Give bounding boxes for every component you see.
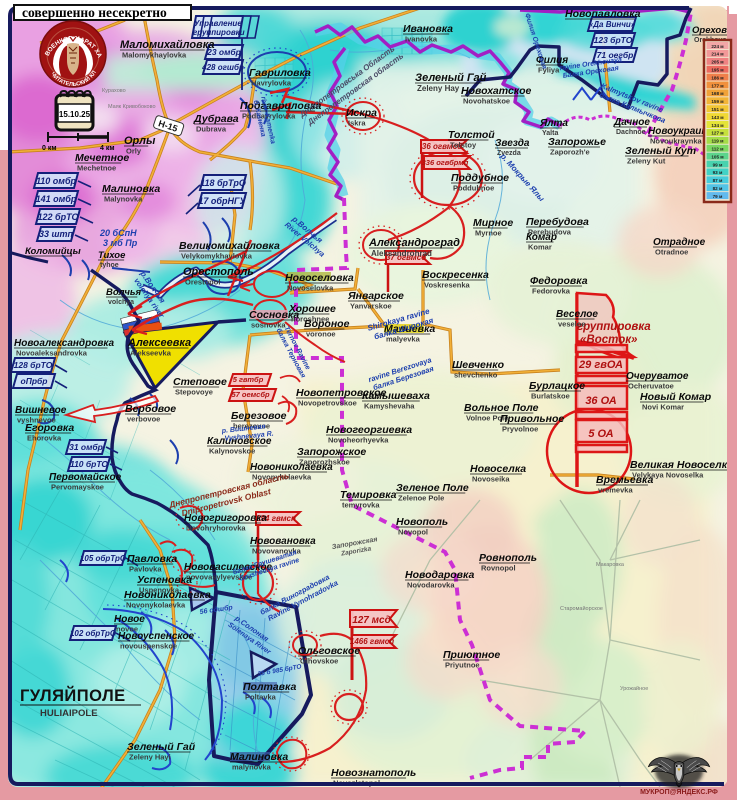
svg-text:Комар: Комар: [526, 232, 557, 243]
svg-text:Успеновка: Успеновка: [137, 574, 192, 586]
svg-text:veseloe: veseloe: [558, 320, 586, 329]
svg-text:Веселое: Веселое: [556, 309, 598, 320]
svg-text:Старомайорское: Старомайорское: [560, 605, 603, 612]
svg-text:79 м: 79 м: [713, 194, 723, 199]
svg-text:Новоселовка: Новоселовка: [285, 272, 354, 284]
svg-text:Zeleny Hay: Zeleny Hay: [417, 84, 460, 93]
svg-text:168 м: 168 м: [711, 91, 724, 96]
svg-text:Новополь: Новополь: [396, 516, 448, 528]
svg-text:volchya: volchya: [108, 299, 134, 306]
svg-text:Январское: Январское: [347, 290, 404, 302]
svg-text:Dachnoe: Dachnoe: [616, 129, 646, 136]
svg-text:205 м: 205 м: [711, 60, 724, 65]
svg-text:Новое: Новое: [114, 614, 145, 625]
svg-text:Pervomayskoe: Pervomayskoe: [51, 483, 104, 492]
svg-text:Курахово: Курахово: [102, 88, 126, 94]
svg-text:novouspenskoe: novouspenskoe: [120, 642, 177, 651]
svg-text:Dubrava: Dubrava: [196, 125, 227, 134]
svg-text:Poddubnoe: Poddubnoe: [453, 184, 494, 193]
svg-text:Ольговское: Ольговское: [298, 645, 360, 657]
svg-text:Великая Новоселка: Великая Новоселка: [630, 459, 733, 471]
svg-text:17 обрНГУ: 17 обрНГУ: [198, 196, 246, 206]
svg-text:Kamyshevaha: Kamyshevaha: [364, 402, 415, 411]
svg-text:Очеруватое: Очеруватое: [626, 371, 689, 382]
svg-text:malynovka: malynovka: [232, 763, 272, 772]
svg-text:15.10.25: 15.10.25: [59, 110, 91, 119]
svg-text:Novopol: Novopol: [398, 528, 428, 537]
svg-text:Ровнополь: Ровнополь: [479, 552, 537, 564]
svg-text:Искра: Искра: [346, 107, 377, 119]
svg-text:Kalynovskoe: Kalynovskoe: [209, 447, 255, 456]
svg-text:112 м: 112 м: [711, 147, 724, 152]
svg-text:Pavlovka: Pavlovka: [129, 565, 162, 574]
svg-text:Aleksandrohrad: Aleksandrohrad: [371, 249, 432, 258]
svg-text:Новохатское: Новохатское: [461, 85, 532, 97]
svg-text:Zelenoe Pole: Zelenoe Pole: [398, 494, 444, 503]
svg-text:Komar: Komar: [528, 243, 552, 252]
svg-text:Zaporozh'e: Zaporozh'e: [550, 148, 590, 157]
svg-text:Ocheruvatoe: Ocheruvatoe: [628, 382, 674, 391]
svg-text:Звезда: Звезда: [495, 138, 530, 149]
svg-text:temyrovka: temyrovka: [342, 501, 380, 510]
svg-text:Myrnoe: Myrnoe: [475, 229, 502, 238]
svg-text:93 м: 93 м: [713, 170, 723, 175]
svg-text:Зеленое Поле: Зеленое Поле: [396, 482, 469, 494]
svg-text:Алексеевка: Алексеевка: [127, 337, 191, 349]
svg-text:127 м: 127 м: [711, 131, 724, 136]
svg-text:Гавриловка: Гавриловка: [249, 67, 311, 79]
svg-text:102 обрТрО: 102 обрТрО: [70, 629, 117, 638]
svg-text:Stepovoye: Stepovoye: [175, 388, 213, 397]
svg-text:оПрбр: оПрбр: [21, 376, 48, 386]
svg-text:Alekseevka: Alekseevka: [130, 349, 172, 358]
svg-text:Malynovka: Malynovka: [104, 195, 143, 204]
svg-text:Отрадное: Отрадное: [653, 237, 706, 248]
svg-text:Rovnopol: Rovnopol: [481, 564, 516, 573]
svg-text:127 мсд: 127 мсд: [352, 615, 391, 626]
svg-text:Новоалександровка: Новоалександровка: [14, 338, 115, 349]
svg-text:5 гвтбр: 5 гвтбр: [233, 375, 264, 384]
svg-text:Березовое: Березовое: [231, 410, 287, 422]
svg-text:214 м: 214 м: [711, 52, 724, 57]
svg-text:143 м: 143 м: [711, 115, 724, 120]
svg-text:Новоуспенское: Новоуспенское: [118, 631, 195, 642]
svg-text:Ivanovka: Ivanovka: [405, 35, 438, 44]
svg-text:195 м: 195 м: [711, 68, 724, 73]
svg-text:Малиновка: Малиновка: [230, 751, 288, 763]
svg-text:3 мб Пр: 3 мб Пр: [103, 238, 138, 248]
svg-text:Темировка: Темировка: [340, 489, 397, 501]
svg-text:Камышеваха: Камышеваха: [362, 390, 430, 402]
svg-text:33 штп: 33 штп: [39, 229, 74, 239]
svg-text:Priyutnoe: Priyutnoe: [445, 661, 480, 670]
svg-text:Дачное: Дачное: [613, 117, 650, 128]
svg-text:Новознатополь: Новознатополь: [331, 767, 416, 779]
svg-text:Коломийцы: Коломийцы: [25, 246, 81, 257]
svg-text:110 брТО: 110 брТО: [70, 459, 108, 469]
svg-text:Привольное: Привольное: [500, 413, 564, 425]
svg-text:Novoseika: Novoseika: [472, 475, 510, 484]
svg-text:Novonykolaevka: Novonykolaevka: [126, 601, 186, 610]
svg-text:Шевченко: Шевченко: [452, 359, 505, 371]
svg-text:336 огвбрмп: 336 огвбрмп: [422, 158, 469, 167]
svg-text:Приютное: Приютное: [443, 649, 500, 661]
svg-text:shevchenko: shevchenko: [454, 371, 498, 380]
svg-text:Великомихайловка: Великомихайловка: [179, 240, 280, 252]
svg-text:119 м: 119 м: [711, 139, 724, 144]
svg-text:Зеленый Гай: Зеленый Гай: [127, 741, 196, 753]
svg-text:Воскресенка: Воскресенка: [422, 269, 489, 281]
svg-text:Новодаровка: Новодаровка: [405, 569, 474, 581]
svg-text:Ивановка: Ивановка: [403, 23, 453, 35]
svg-text:совершенно несекретно: совершенно несекретно: [22, 5, 167, 20]
svg-text:vremevka: vremevka: [598, 486, 633, 495]
svg-text:Olhovskoe: Olhovskoe: [300, 657, 338, 666]
svg-text:110 омбр: 110 омбр: [36, 176, 77, 186]
svg-text:57 оемсбр: 57 оемсбр: [231, 390, 270, 399]
svg-text:36 ОА: 36 ОА: [585, 395, 616, 407]
svg-text:Маломихайловка: Маломихайловка: [120, 39, 215, 51]
svg-text:105 обрТрО: 105 обрТрО: [80, 554, 127, 563]
svg-text:группировки: группировки: [193, 28, 245, 37]
svg-text:0 км: 0 км: [42, 145, 57, 152]
svg-text:Voskresenka: Voskresenka: [424, 281, 471, 290]
svg-text:Дубрава: Дубрава: [193, 113, 239, 125]
svg-text:Времьевка: Времьевка: [596, 474, 653, 486]
svg-text:Novoheorhyevka: Novoheorhyevka: [328, 436, 389, 445]
svg-text:verbovoe: verbovoe: [127, 415, 160, 424]
svg-text:voronoe: voronoe: [306, 330, 336, 339]
svg-text:Урожайное: Урожайное: [620, 685, 648, 692]
svg-text:29 гвОА: 29 гвОА: [578, 359, 623, 371]
svg-text:Поддубное: Поддубное: [451, 172, 509, 184]
svg-text:141 омбр: 141 омбр: [36, 194, 77, 204]
svg-text:HULIAIPOLE: HULIAIPOLE: [40, 708, 98, 719]
svg-text:Ehorovka: Ehorovka: [27, 434, 62, 443]
svg-text:Хорошее: Хорошее: [288, 303, 336, 315]
svg-text:Новониколаевка: Новониколаевка: [124, 589, 211, 601]
svg-text:118 брТрО: 118 брТрО: [200, 178, 246, 188]
svg-text:Федоровка: Федоровка: [530, 275, 588, 287]
svg-text:Орехово: Орехово: [692, 25, 733, 36]
svg-text:123 брТО: 123 брТО: [594, 35, 633, 45]
svg-text:Mechetnoe: Mechetnoe: [77, 164, 116, 173]
svg-text:Новоселка: Новоселка: [470, 463, 526, 475]
svg-text:128 брТО: 128 брТО: [14, 360, 53, 370]
svg-text:Novodarovka: Novodarovka: [407, 581, 455, 590]
svg-text:82 м: 82 м: [713, 186, 723, 191]
svg-text:Tolstoy: Tolstoy: [450, 141, 477, 150]
svg-text:Александроград: Александроград: [368, 237, 460, 249]
svg-text:Новониколаевка: Новониколаевка: [250, 462, 333, 473]
svg-text:Орлы: Орлы: [124, 135, 156, 147]
svg-text:Pryvolnoe: Pryvolnoe: [502, 425, 538, 434]
svg-text:Yanvarskoe: Yanvarskoe: [350, 302, 392, 311]
svg-text:Novohryhorovka: Novohryhorovka: [186, 524, 246, 533]
svg-text:Перебудова: Перебудова: [526, 216, 589, 228]
svg-text:Толстой: Толстой: [448, 129, 495, 141]
svg-text:99 м: 99 м: [713, 162, 723, 167]
svg-text:Zeleny Kut: Zeleny Kut: [627, 157, 666, 166]
svg-text:4 км: 4 км: [100, 145, 115, 152]
svg-text:Вишневое: Вишневое: [15, 405, 67, 416]
svg-text:20 бСпН: 20 бСпН: [99, 228, 137, 238]
svg-text:Novi Komar: Novi Komar: [642, 403, 684, 412]
svg-text:Velykomykhaylovka: Velykomykhaylovka: [181, 252, 253, 261]
svg-text:Havrylovka: Havrylovka: [251, 79, 292, 88]
svg-text:105 м: 105 м: [711, 154, 724, 159]
svg-text:группировка: группировка: [577, 321, 651, 333]
svg-text:ГУЛЯЙПОЛЕ: ГУЛЯЙПОЛЕ: [20, 686, 126, 705]
svg-text:428 огшбр: 428 огшбр: [201, 63, 244, 72]
svg-text:Novopetrovskoe: Novopetrovskoe: [298, 399, 357, 408]
svg-text:Тихое: Тихое: [98, 250, 126, 261]
svg-text:5 ОА: 5 ОА: [588, 428, 613, 440]
svg-text:Степовое: Степовое: [173, 376, 227, 388]
svg-text:«Да Винчи»: «Да Винчи»: [589, 20, 636, 29]
svg-text:Orestopol: Orestopol: [185, 278, 220, 287]
svg-text:Novoselovka: Novoselovka: [287, 284, 334, 293]
svg-text:186 м: 186 м: [711, 75, 724, 80]
svg-text:159 м: 159 м: [711, 99, 724, 104]
svg-text:134 м: 134 м: [711, 123, 724, 128]
svg-text:Зеленый Кут: Зеленый Кут: [625, 145, 696, 157]
svg-text:Управление: Управление: [194, 19, 242, 28]
svg-text:Мирное: Мирное: [473, 217, 513, 229]
svg-text:Zeleny Hayi: Zeleny Hayi: [129, 753, 171, 762]
svg-text:122 брТО: 122 брТО: [38, 212, 79, 222]
svg-text:tyhoe: tyhoe: [100, 262, 119, 269]
svg-text:Новый Комар: Новый Комар: [640, 391, 712, 403]
svg-text:МУКРОП@ЯНДЕКС.РФ: МУКРОП@ЯНДЕКС.РФ: [640, 789, 718, 796]
svg-text:87 м: 87 м: [713, 178, 723, 183]
svg-text:Павловка: Павловка: [127, 553, 177, 565]
svg-text:Мечетное: Мечетное: [75, 152, 129, 164]
svg-text:Егоровка: Егоровка: [25, 422, 74, 434]
svg-text:Запорожье: Запорожье: [548, 136, 606, 148]
svg-text:Макаровка: Макаровка: [596, 562, 625, 568]
svg-text:Полтавка: Полтавка: [243, 681, 296, 693]
svg-text:Бурлацкое: Бурлацкое: [529, 380, 585, 392]
svg-text:Fedorovka: Fedorovka: [532, 287, 571, 296]
svg-text:Novoaleksandrovka: Novoaleksandrovka: [16, 349, 88, 358]
svg-text:Вороное: Вороное: [304, 318, 350, 330]
svg-text:224 м: 224 м: [711, 44, 724, 49]
svg-text:Орестополь: Орестополь: [183, 266, 254, 278]
svg-text:Новогеоргиевка: Новогеоргиевка: [326, 424, 412, 436]
svg-text:Iskra: Iskra: [348, 119, 366, 128]
svg-text:Маяк Кривобоково: Маяк Кривобоково: [108, 104, 156, 110]
svg-text:Волчья: Волчья: [106, 287, 142, 298]
svg-text:Запорожское: Запорожское: [297, 446, 366, 458]
svg-text:Ялта: Ялта: [539, 118, 568, 129]
svg-text:151 м: 151 м: [711, 107, 724, 112]
svg-text:Вербовое: Вербовое: [125, 403, 176, 415]
svg-text:Зеленый Гай: Зеленый Гай: [415, 72, 487, 84]
svg-text:Burlatskoe: Burlatskoe: [531, 392, 570, 401]
svg-text:Малиновка: Малиновка: [102, 183, 160, 195]
svg-text:Malomykhaylovka: Malomykhaylovka: [122, 51, 187, 60]
svg-text:Нововановка: Нововановка: [250, 536, 316, 547]
svg-text:Novohatskoe: Novohatskoe: [463, 97, 510, 106]
svg-text:Otradnoe: Otradnoe: [655, 248, 688, 257]
svg-text:Poltavka: Poltavka: [245, 693, 277, 702]
svg-text:177 м: 177 м: [711, 83, 724, 88]
svg-text:31 омбр: 31 омбр: [69, 442, 103, 452]
svg-text:Первомайское: Первомайское: [49, 472, 122, 483]
